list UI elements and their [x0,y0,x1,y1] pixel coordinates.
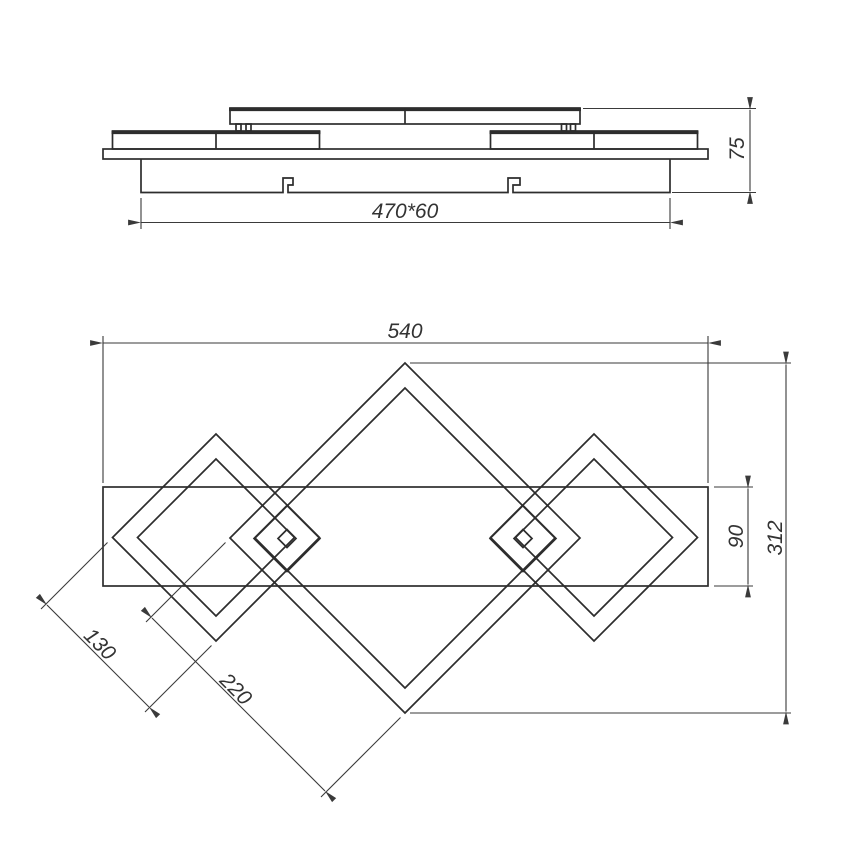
technical-drawing-canvas: 470*60 75 540 [0,0,868,868]
right-diamond-inner [516,459,673,616]
dim-75-label: 75 [726,137,749,161]
dim-470x60-label: 470*60 [372,200,439,223]
dim-130: 130 [41,543,212,713]
dim-220-label: 220 [214,668,256,710]
base-plate [103,149,708,159]
mounting-box-outline [141,159,670,193]
left-foot-a [236,124,241,131]
right-foot-a [562,124,567,131]
large-diamond-outer [230,363,580,713]
dim-130-label: 130 [79,624,120,665]
left-foot-b [246,124,251,131]
dim-540-label: 540 [387,320,422,343]
dim-90-label: 90 [725,525,748,549]
right-small-diamond-outer [490,506,556,572]
extension-line [321,718,401,798]
plan-view: 540 312 90 130 220 [41,320,791,797]
left-small-diamond-outer [254,506,320,572]
large-diamond-inner [255,388,555,688]
right-diamond-outer [491,434,698,641]
left-diamond-inner [138,459,295,616]
left-diamond-outer [113,434,320,641]
dim-90: 90 [714,487,753,586]
dim-470x60: 470*60 [141,198,670,229]
dim-312-label: 312 [764,520,787,555]
dim-540: 540 [103,320,708,483]
extension-line [145,646,212,713]
right-foot-b [571,124,576,131]
side-view: 470*60 75 [103,108,756,229]
band [103,487,708,586]
extension-line [41,543,108,610]
